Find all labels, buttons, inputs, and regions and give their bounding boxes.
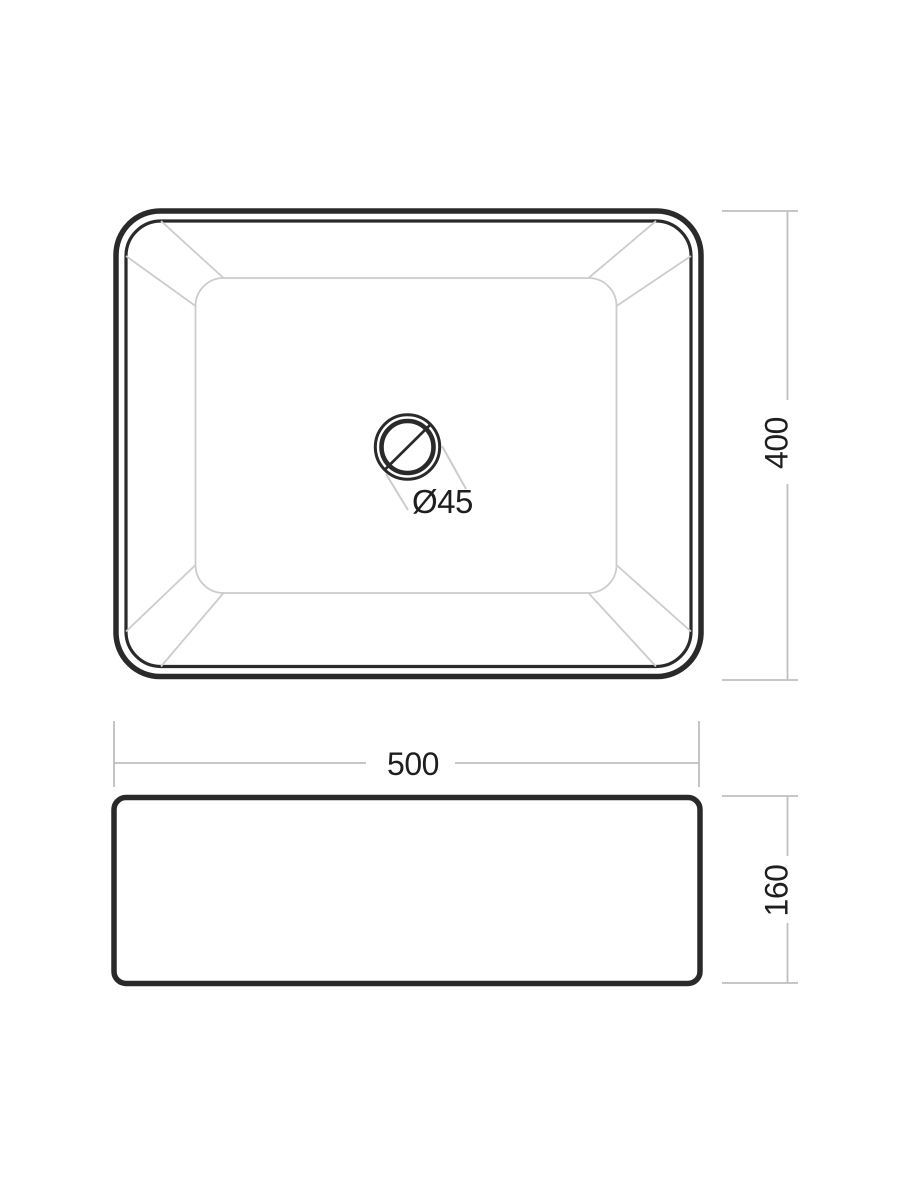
width-dimension-label: 500: [387, 746, 439, 782]
top-view: Ø45: [116, 211, 701, 677]
dimension-height: 160: [722, 796, 798, 983]
height-dimension-label: 160: [759, 865, 795, 917]
depth-dimension-label: 400: [759, 417, 795, 469]
top-view-outer-rim: [116, 211, 701, 677]
drawing-canvas: Ø45 400 500 160: [0, 0, 900, 1200]
dimension-depth: 400: [722, 211, 798, 680]
technical-drawing-svg: Ø45 400 500 160: [0, 0, 900, 1200]
side-view: [114, 798, 700, 984]
side-view-outline: [114, 798, 700, 984]
dimension-width: 500: [114, 721, 699, 787]
drain-diameter-label: Ø45: [412, 483, 473, 520]
